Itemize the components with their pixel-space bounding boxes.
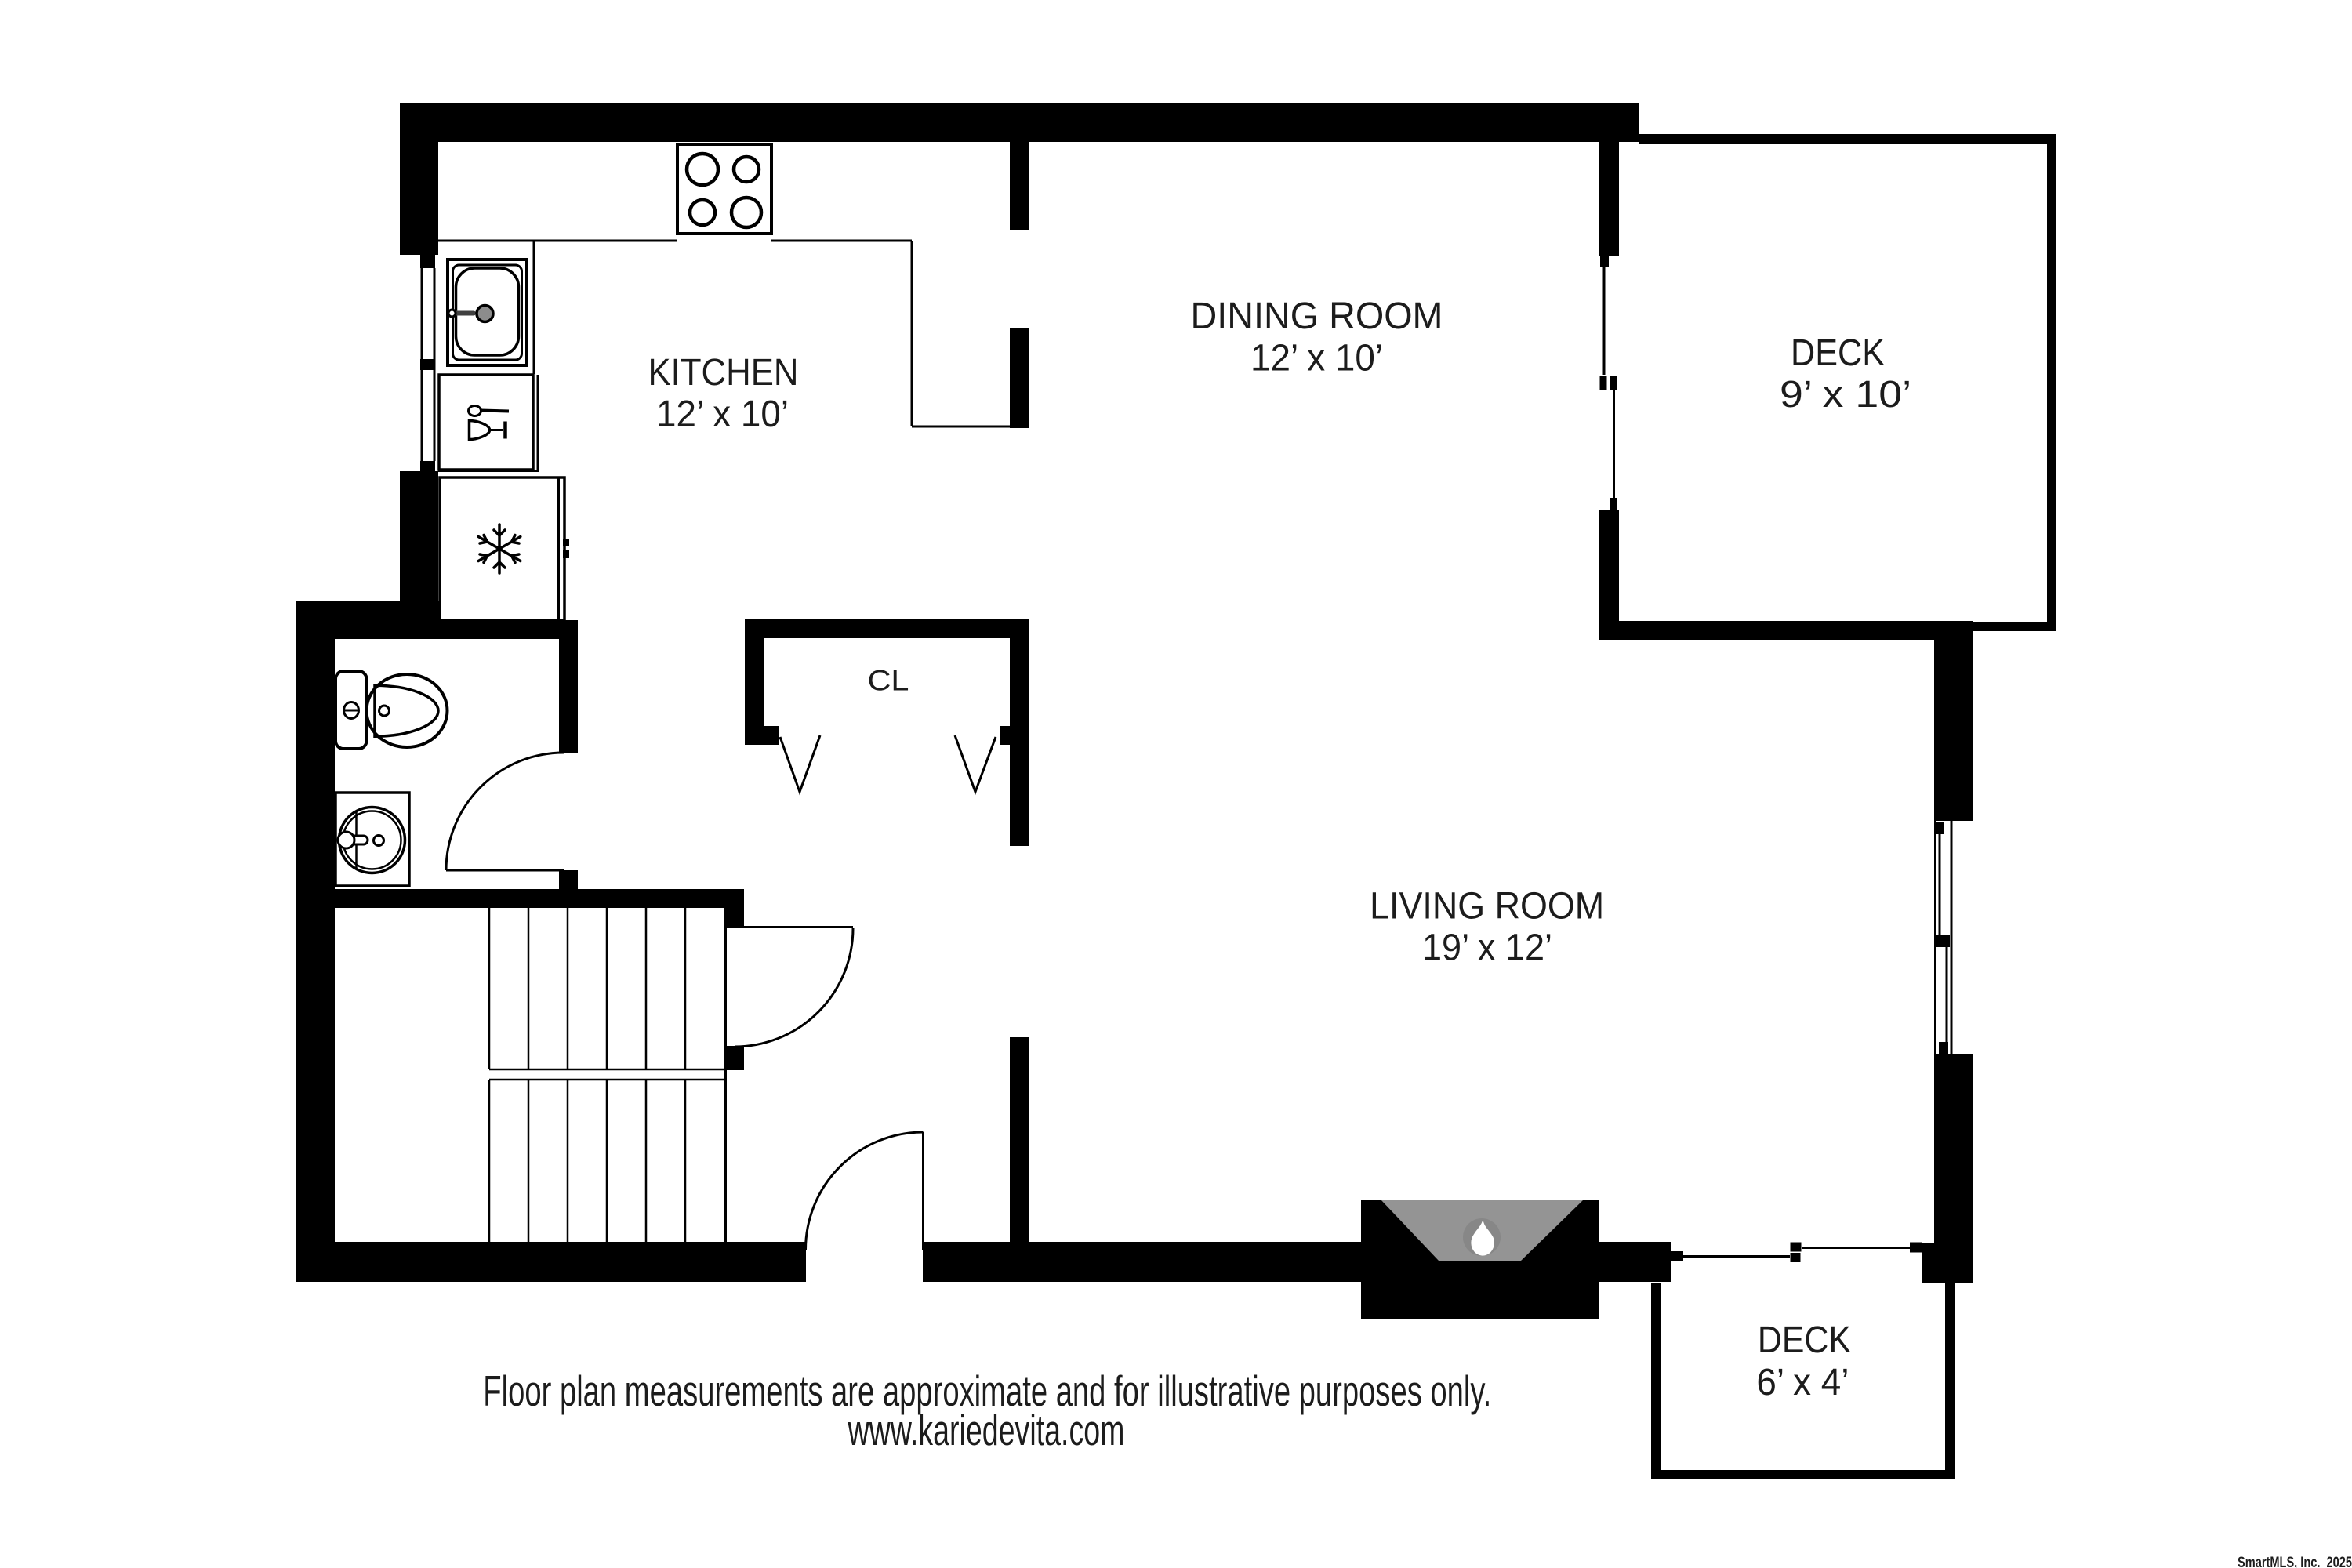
svg-text:DINING ROOM: DINING ROOM [1191, 296, 1443, 337]
svg-text:DECK: DECK [1791, 332, 1885, 374]
svg-text:www.kariedevita.com: www.kariedevita.com [848, 1406, 1125, 1454]
svg-text:SmartMLS, Inc. 2025: SmartMLS, Inc. 2025 [2238, 1555, 2352, 1568]
svg-text:LIVING ROOM: LIVING ROOM [1370, 886, 1604, 927]
svg-text:12’ x 10’: 12’ x 10’ [656, 394, 789, 435]
svg-text:12’ x 10’: 12’ x 10’ [1250, 338, 1383, 379]
svg-text:19’ x 12’: 19’ x 12’ [1422, 927, 1552, 968]
svg-text:KITCHEN: KITCHEN [648, 352, 799, 394]
svg-text:DECK: DECK [1758, 1319, 1851, 1361]
svg-text:6’ x 4’: 6’ x 4’ [1756, 1362, 1849, 1403]
svg-text:9’ x 10’: 9’ x 10’ [1780, 374, 1911, 416]
svg-text:CL: CL [868, 665, 909, 697]
